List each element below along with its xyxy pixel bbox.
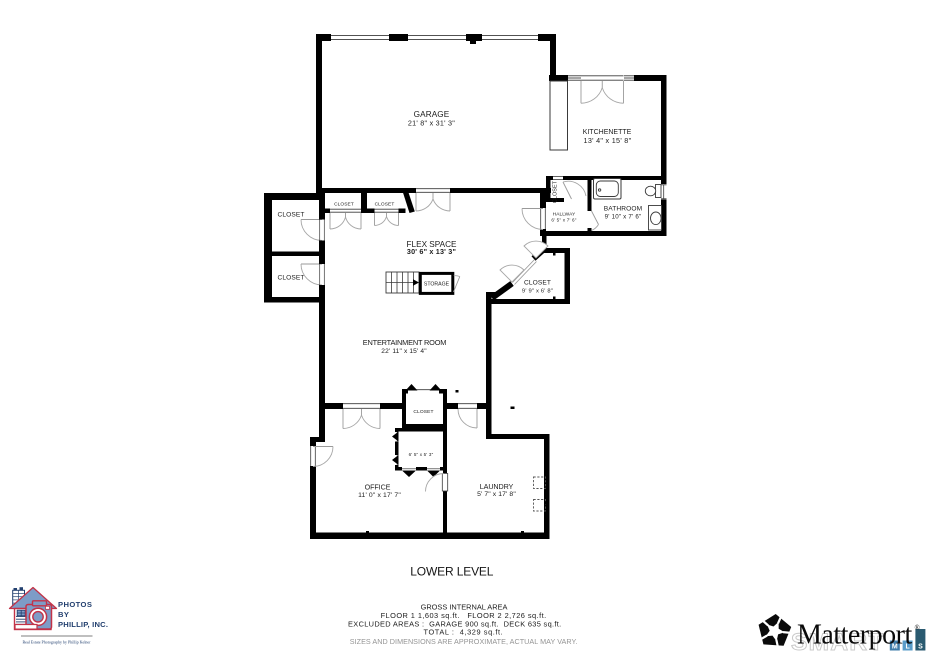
svg-text:CLOSET: CLOSET [278,275,305,282]
svg-text:13' 4" x 15' 8": 13' 4" x 15' 8" [584,136,632,145]
svg-text:5' 7" x 17' 8": 5' 7" x 17' 8" [477,491,516,498]
svg-text:CLOSET: CLOSET [334,202,354,208]
svg-text:OFFICE: OFFICE [365,482,391,491]
svg-text:9' 9" x 6' 8": 9' 9" x 6' 8" [522,288,553,294]
svg-text:CLOSET: CLOSET [553,180,559,203]
svg-text:CLOSET: CLOSET [278,212,305,219]
svg-text:SIZES AND DIMENSIONS ARE APPRO: SIZES AND DIMENSIONS ARE APPROXIMATE, AC… [350,637,578,646]
svg-text:®: ® [915,624,921,632]
svg-text:22' 11" x 15' 4": 22' 11" x 15' 4" [381,348,427,355]
svg-text:PHILLIP, INC.: PHILLIP, INC. [58,620,108,629]
svg-text:Matterport: Matterport [797,620,912,651]
svg-text:BATHROOM: BATHROOM [604,206,642,213]
svg-text:9' 10" x 7' 6": 9' 10" x 7' 6" [605,213,642,220]
svg-text:30' 6" x 13' 3": 30' 6" x 13' 3" [407,247,456,256]
svg-text:TOTAL : 4,329 sq.ft.: TOTAL : 4,329 sq.ft. [423,628,503,637]
svg-text:11' 0" x 17' 7": 11' 0" x 17' 7" [358,492,401,499]
svg-text:CLOSET: CLOSET [413,409,433,415]
svg-text:ENTERTAINMENT ROOM: ENTERTAINMENT ROOM [363,338,446,347]
svg-text:21' 8" x 31' 3": 21' 8" x 31' 3" [408,119,455,128]
svg-text:CLOSET: CLOSET [524,280,551,287]
svg-text:Real Estate Photography by Phi: Real Estate Photography by Phillip Kelne… [22,639,91,644]
svg-text:S: S [918,643,923,650]
svg-text:LOWER LEVEL: LOWER LEVEL [410,565,494,579]
svg-text:LAUNDRY: LAUNDRY [480,482,514,491]
svg-text:BY: BY [58,610,69,619]
svg-text:6' 5" x 5' 3": 6' 5" x 5' 3" [409,452,434,457]
svg-text:STORAGE: STORAGE [424,281,450,287]
svg-text:PHOTOS: PHOTOS [58,600,92,609]
svg-text:CLOSET: CLOSET [375,202,395,208]
svg-text:6' 5" x 7' 6": 6' 5" x 7' 6" [551,218,576,223]
